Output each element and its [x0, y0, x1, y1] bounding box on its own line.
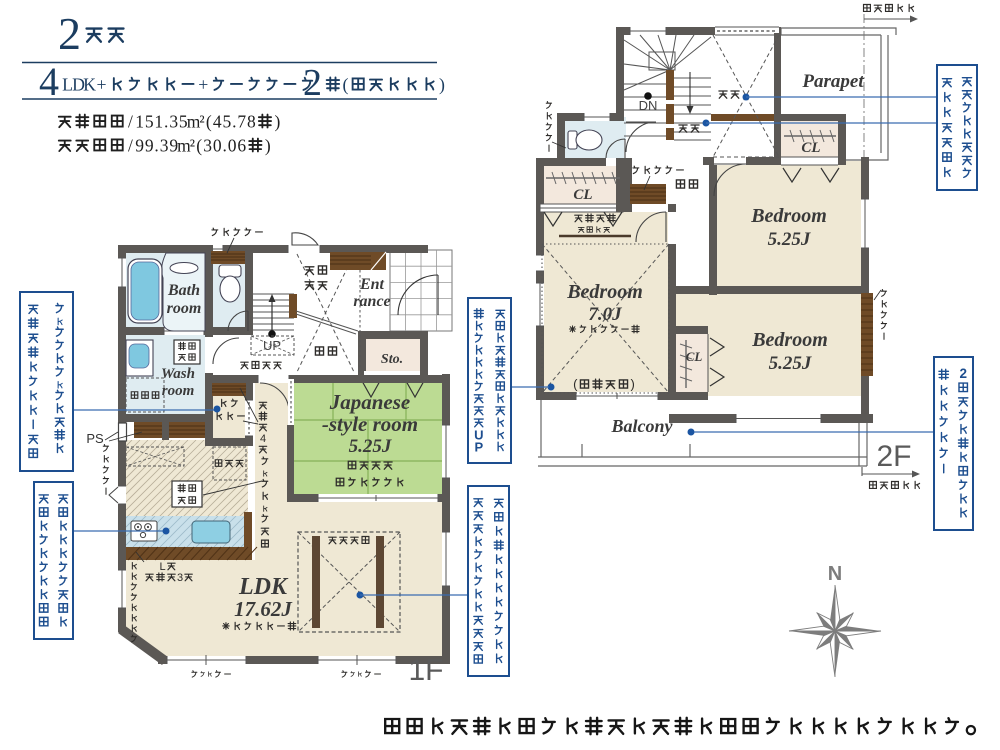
svg-text:Japanese: Japanese	[329, 390, 411, 414]
svg-text:): )	[274, 111, 280, 131]
svg-text:0: 0	[228, 135, 237, 155]
svg-text:9: 9	[135, 135, 144, 155]
svg-text:Bath: Bath	[167, 282, 200, 299]
svg-text:2: 2	[58, 8, 81, 59]
svg-text:4: 4	[213, 111, 222, 131]
svg-text:3: 3	[177, 572, 183, 584]
svg-text:0: 0	[213, 135, 222, 155]
svg-text:3: 3	[160, 135, 169, 155]
svg-text:4: 4	[260, 433, 266, 445]
svg-text:Bedroom: Bedroom	[751, 329, 828, 351]
svg-text:/: /	[128, 135, 133, 155]
svg-text:+: +	[96, 74, 106, 94]
svg-text:.: .	[164, 111, 168, 131]
svg-text:.: .	[154, 135, 158, 155]
svg-text:5.25J: 5.25J	[768, 229, 811, 250]
svg-text:.: .	[232, 111, 236, 131]
svg-text:1F: 1F	[408, 654, 443, 687]
svg-text:+: +	[198, 74, 208, 94]
svg-text:4: 4	[39, 59, 59, 104]
svg-text:DN: DN	[639, 98, 658, 113]
svg-text:2F: 2F	[876, 440, 911, 473]
svg-text:): )	[631, 377, 635, 392]
svg-text:Wash: Wash	[161, 366, 195, 382]
svg-text:(: (	[343, 74, 349, 95]
svg-text:6: 6	[237, 135, 246, 155]
svg-text:Parapet: Parapet	[801, 71, 864, 92]
svg-text:N: N	[828, 563, 842, 585]
svg-text:): )	[265, 135, 271, 155]
svg-text:room: room	[162, 383, 195, 399]
svg-text:(: (	[196, 135, 202, 155]
svg-text:CL: CL	[801, 140, 820, 156]
svg-text:²: ²	[190, 135, 195, 155]
svg-text:CL: CL	[686, 349, 703, 364]
svg-text:9: 9	[145, 135, 154, 155]
svg-text:Bedroom: Bedroom	[750, 205, 827, 227]
svg-text:5: 5	[223, 111, 232, 131]
svg-text:/: /	[128, 111, 133, 131]
svg-text:Bedroom: Bedroom	[566, 281, 643, 303]
svg-text:.: .	[223, 135, 227, 155]
svg-text:²: ²	[199, 111, 204, 131]
svg-text:(: (	[573, 377, 578, 392]
svg-text:Ent: Ent	[359, 276, 385, 293]
svg-text:3: 3	[169, 111, 178, 131]
svg-text:Sto.: Sto.	[381, 352, 403, 367]
svg-text:UP: UP	[263, 338, 281, 353]
svg-text:Balcony: Balcony	[611, 416, 674, 436]
svg-text:P: P	[474, 440, 483, 455]
svg-text:(: (	[206, 111, 212, 131]
svg-text:17.62J: 17.62J	[234, 597, 293, 621]
svg-text:rance: rance	[353, 293, 390, 310]
svg-text:5: 5	[145, 111, 154, 131]
svg-text:L: L	[159, 561, 165, 573]
svg-text:7: 7	[237, 111, 246, 131]
svg-text:K: K	[83, 74, 96, 94]
svg-text:1: 1	[135, 111, 144, 131]
svg-text:2: 2	[959, 366, 967, 381]
svg-text:5.25J: 5.25J	[349, 436, 392, 457]
svg-text:CL: CL	[573, 187, 592, 203]
svg-text:-style room: -style room	[322, 412, 418, 436]
svg-text:5.25J: 5.25J	[769, 353, 812, 374]
svg-text:3: 3	[203, 135, 212, 155]
svg-text:room: room	[167, 300, 202, 317]
svg-text:PS: PS	[86, 431, 104, 446]
svg-text:8: 8	[247, 111, 256, 131]
svg-text:1: 1	[154, 111, 163, 131]
svg-text:7.0J: 7.0J	[588, 304, 622, 325]
svg-text:2: 2	[303, 62, 322, 104]
svg-text:): )	[439, 74, 445, 95]
